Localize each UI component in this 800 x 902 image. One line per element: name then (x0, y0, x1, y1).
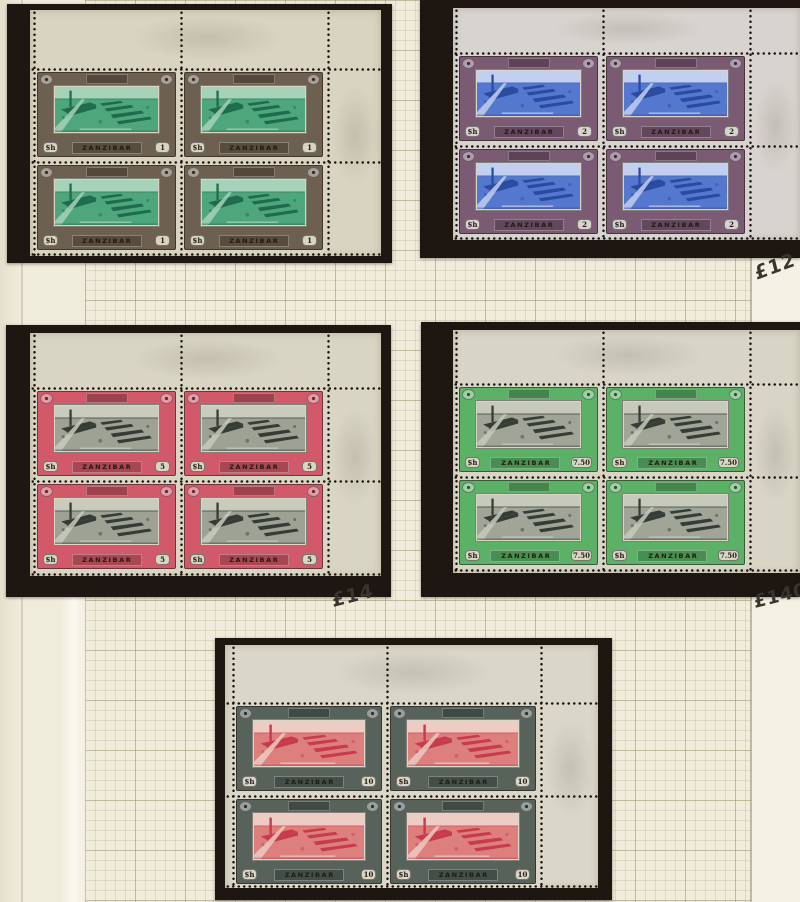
price-annotation: £140 (753, 579, 800, 613)
annotations-container: £12£14£140 (0, 0, 800, 902)
price-annotation: £14 (330, 580, 374, 612)
stamp-album-page: $hZANZIBAR1$hZANZIBAR1$hZANZIBAR1$hZANZI… (0, 0, 800, 902)
price-annotation: £12 (752, 249, 797, 285)
